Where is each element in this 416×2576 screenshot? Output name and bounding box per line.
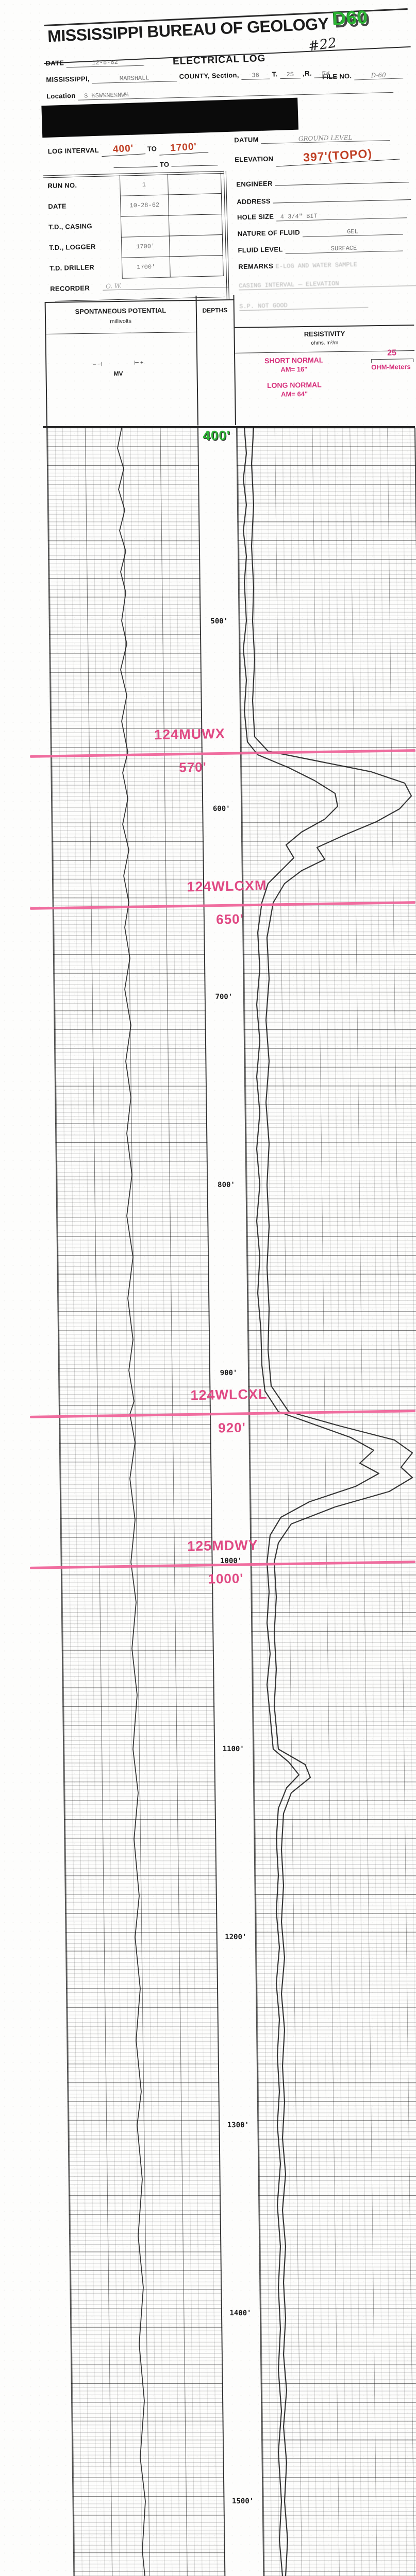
scanned-electrical-log-document: MISSISSIPPI BUREAU OF GEOLOGY ELECTRICAL… <box>0 0 416 2576</box>
annotation-depth-920: 920' <box>218 1420 246 1436</box>
annotation-code-124WLCXM: 124WLCXM <box>187 878 267 895</box>
log-curves <box>0 0 416 2576</box>
annotation-depth-1000: 1000' <box>208 1570 244 1587</box>
annotation-code-124MUWX: 124MUWX <box>154 726 225 743</box>
annotation-code-124WLCXL: 124WLCXL <box>190 1386 268 1404</box>
annotation-code-125MDWY: 125MDWY <box>187 1537 258 1554</box>
annotation-depth-650: 650' <box>216 911 244 928</box>
annotation-depth-570: 570' <box>179 759 207 776</box>
sp-curve <box>118 428 154 2576</box>
